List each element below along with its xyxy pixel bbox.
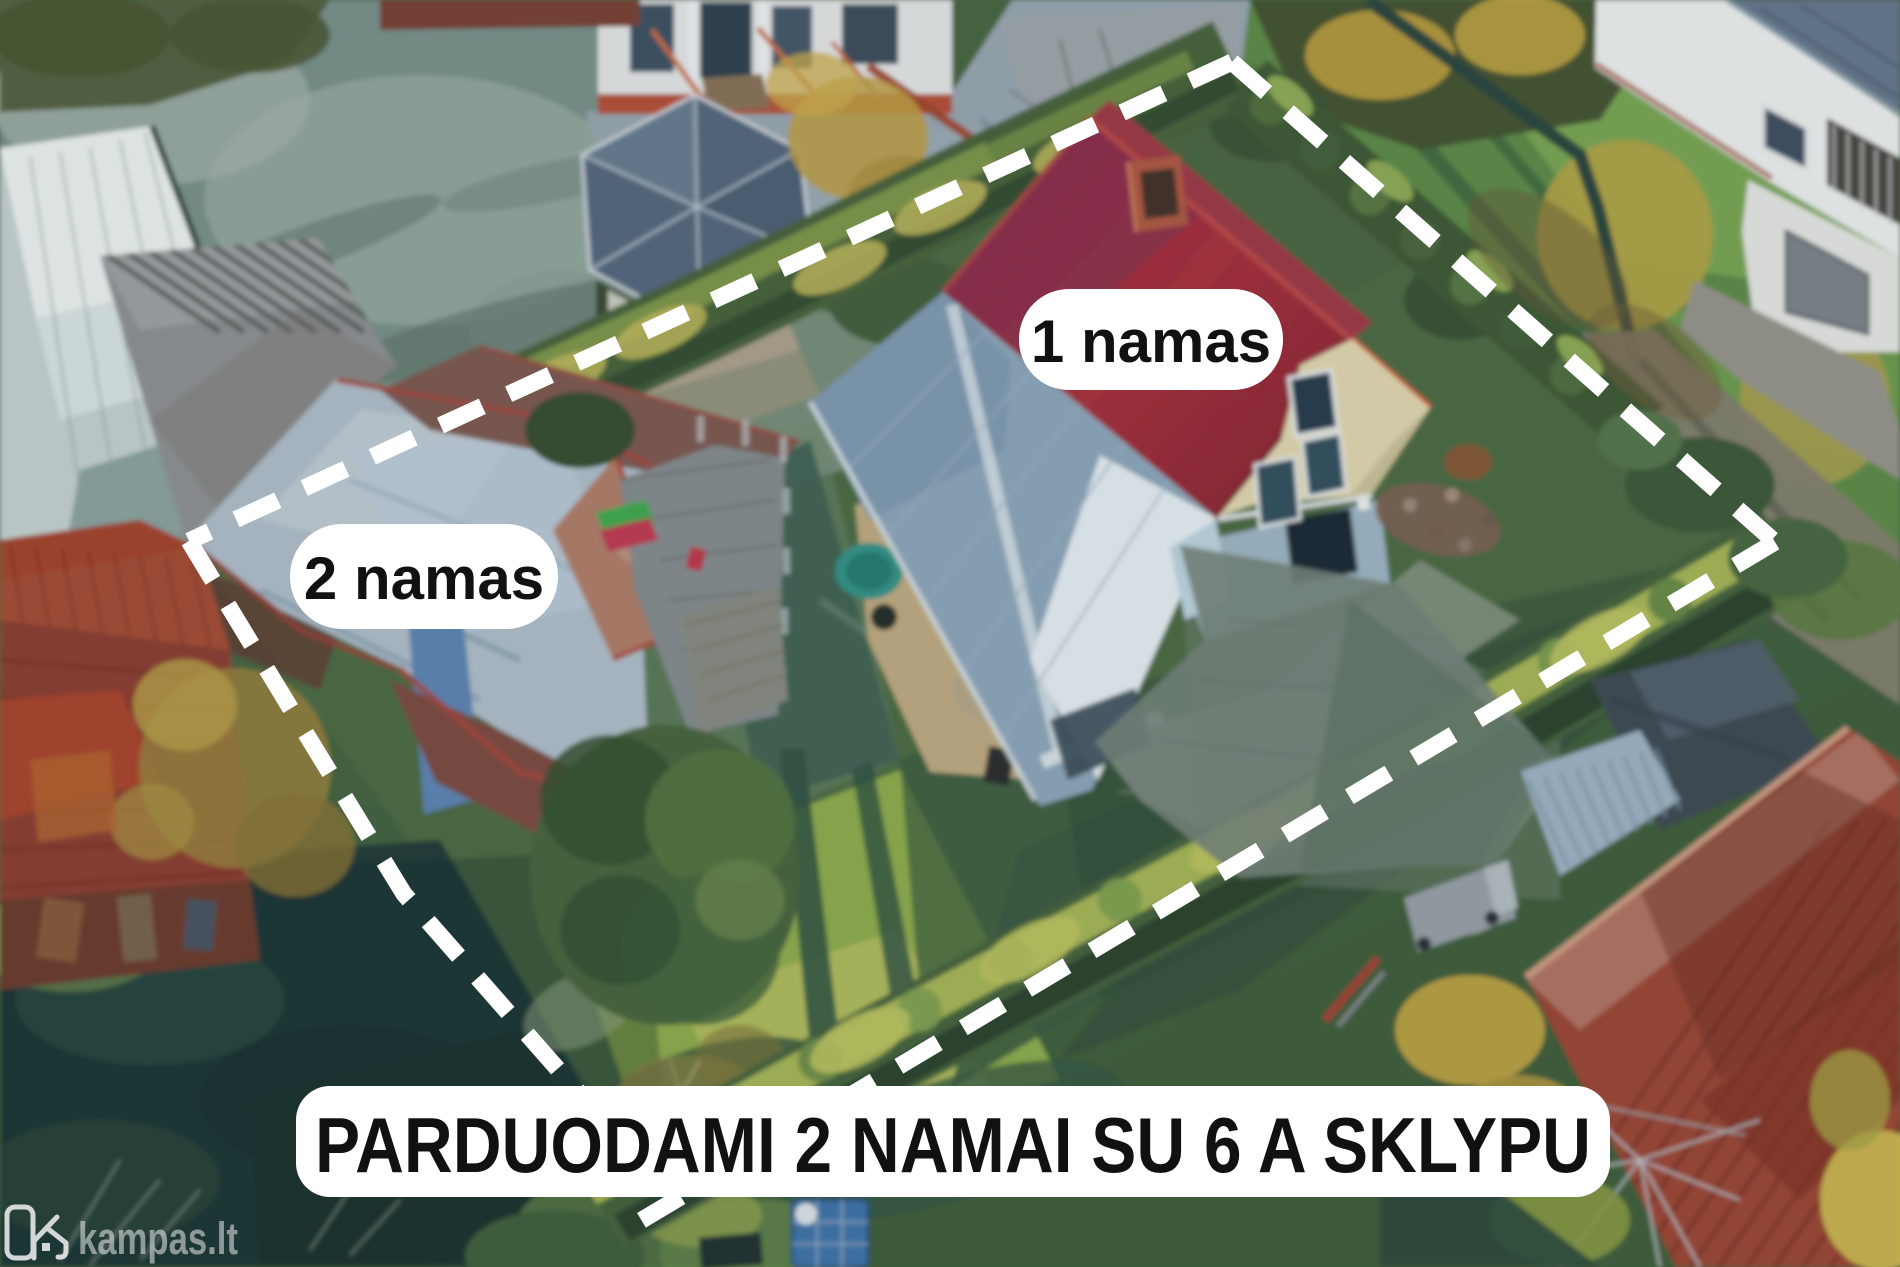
svg-text:kampas.lt: kampas.lt [78,1213,238,1264]
svg-text:1 namas: 1 namas [1031,308,1271,375]
svg-text:PARDUODAMI 2 NAMAI SU 6 A SKLY: PARDUODAMI 2 NAMAI SU 6 A SKLYPU [315,1101,1591,1189]
svg-text:2 namas: 2 namas [304,545,544,612]
